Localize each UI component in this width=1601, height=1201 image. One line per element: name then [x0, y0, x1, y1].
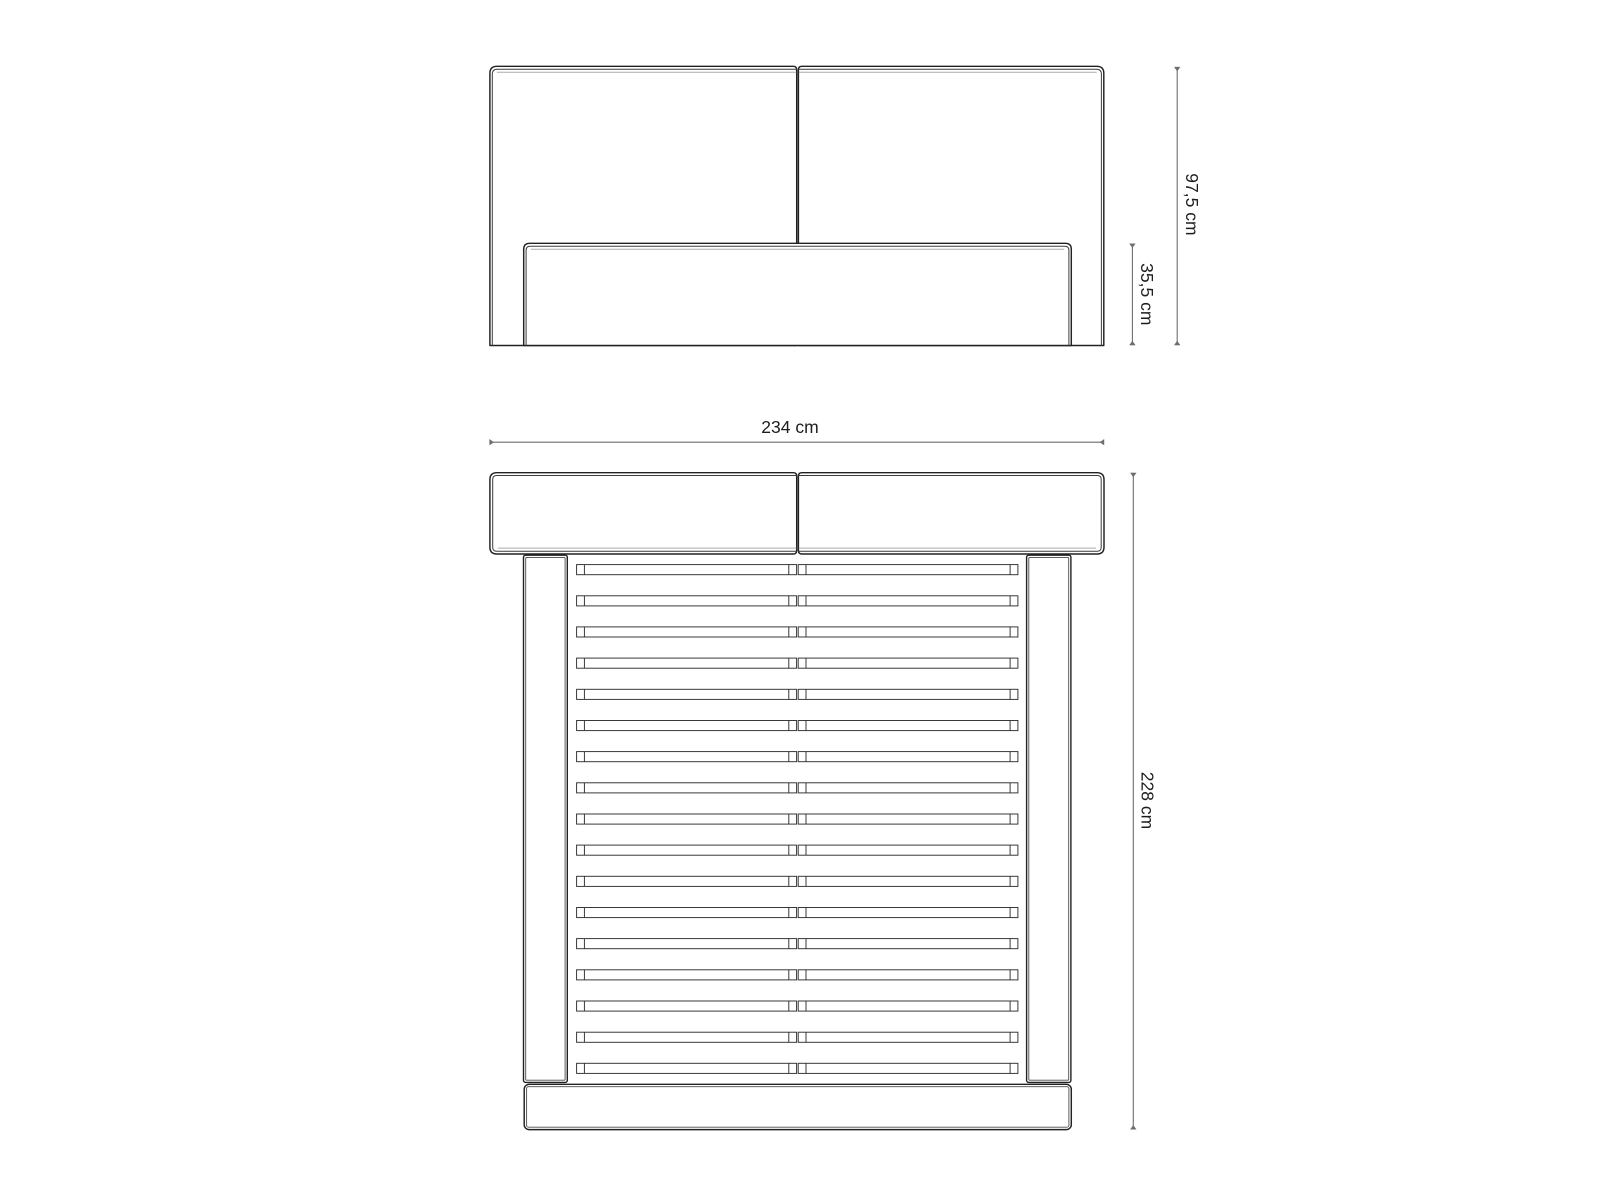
svg-text:97,5 cm: 97,5 cm	[1182, 173, 1202, 235]
svg-text:234 cm: 234 cm	[761, 417, 818, 437]
svg-text:228 cm: 228 cm	[1137, 772, 1157, 829]
svg-text:35,5 cm: 35,5 cm	[1137, 263, 1157, 325]
